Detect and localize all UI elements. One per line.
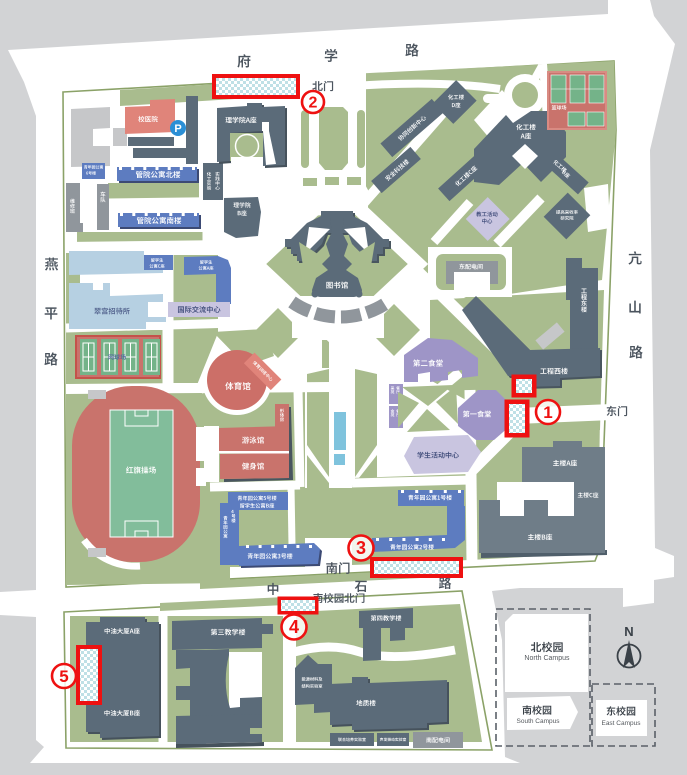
svg-text:South Campus: South Campus (517, 718, 561, 725)
svg-text:3: 3 (356, 538, 366, 558)
svg-text:N: N (624, 624, 633, 639)
svg-text:2: 2 (309, 94, 318, 111)
svg-text:4: 4 (289, 617, 299, 637)
svg-text:North Campus: North Campus (524, 655, 570, 662)
svg-text:5: 5 (59, 667, 68, 686)
svg-text:P: P (174, 123, 181, 135)
svg-text:East Campus: East Campus (601, 720, 641, 727)
svg-text:1: 1 (543, 403, 552, 422)
